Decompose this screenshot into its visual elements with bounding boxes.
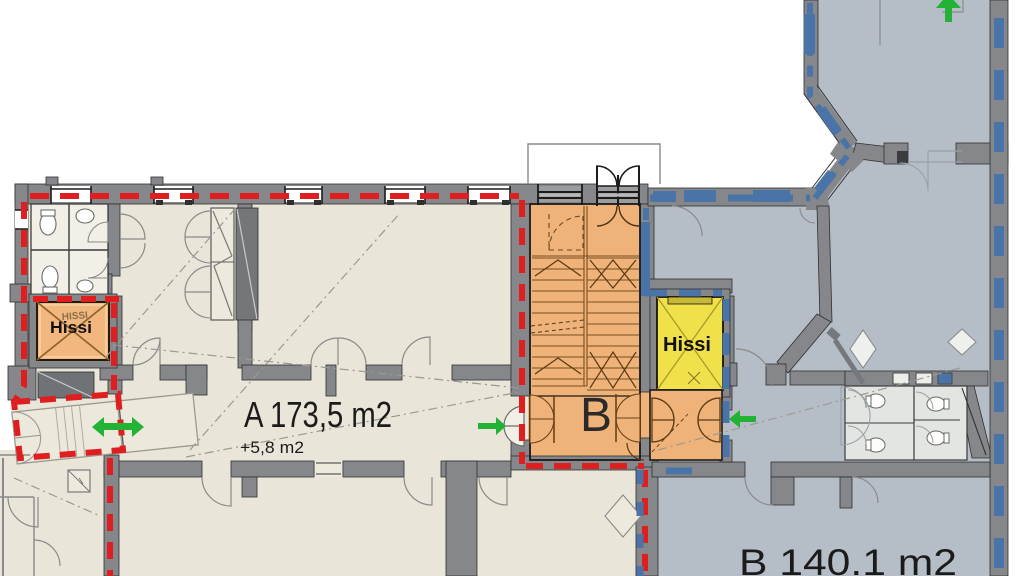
svg-text:B 140.1 m2: B 140.1 m2	[739, 542, 957, 576]
svg-text:Hissi: Hissi	[663, 334, 711, 356]
svg-text:Hissi: Hissi	[50, 318, 92, 337]
svg-text:B: B	[580, 389, 612, 442]
svg-text:A 173,5 m2: A 173,5 m2	[244, 394, 392, 435]
svg-text:+5,8 m2: +5,8 m2	[240, 438, 304, 457]
